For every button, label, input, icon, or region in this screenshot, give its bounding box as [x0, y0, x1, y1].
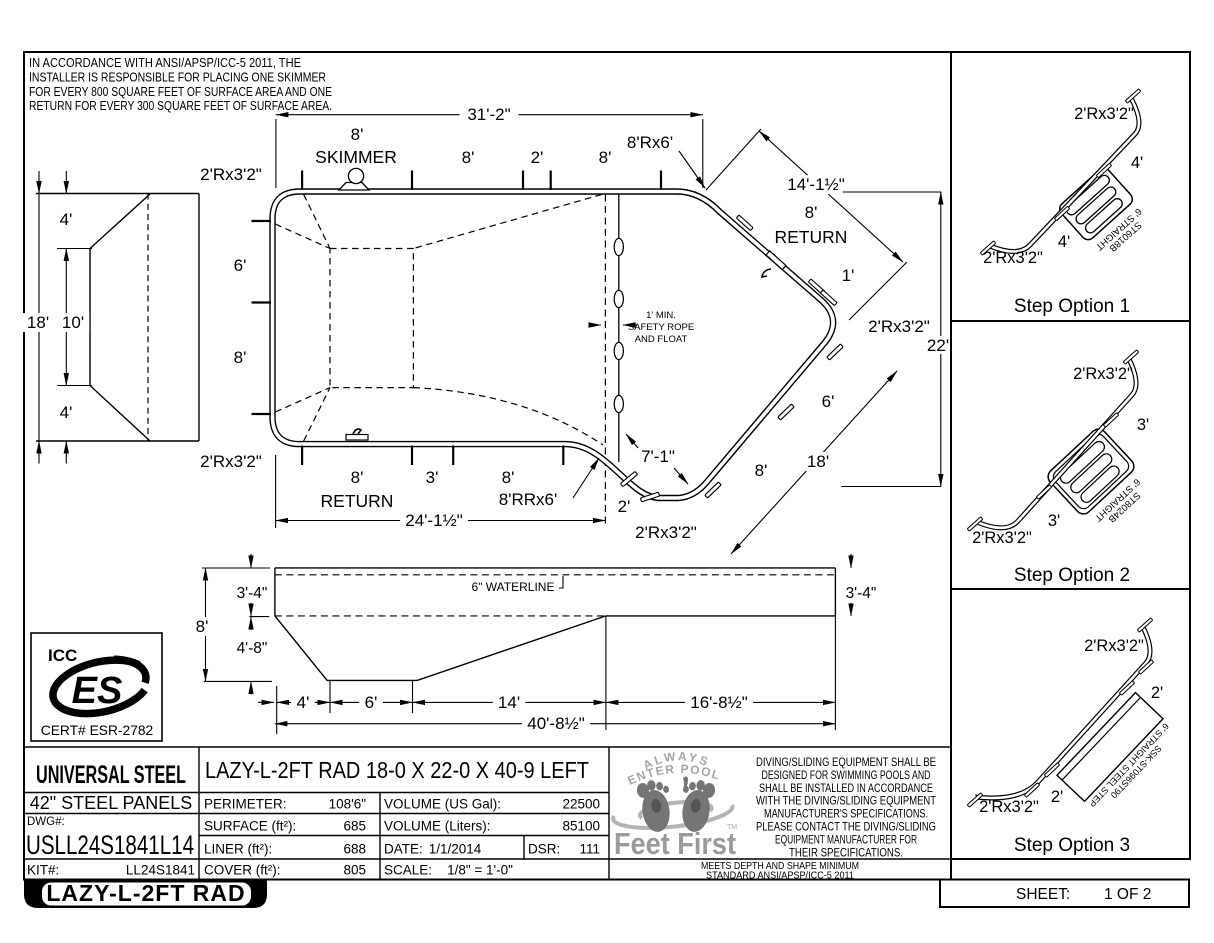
- svg-text:8': 8': [196, 617, 209, 636]
- svg-text:6': 6': [234, 256, 247, 275]
- svg-text:DATE:: DATE:: [384, 842, 423, 857]
- svg-text:SURFACE (ft²):: SURFACE (ft²):: [204, 819, 296, 834]
- svg-text:ICC: ICC: [48, 646, 77, 665]
- svg-text:18': 18': [27, 313, 49, 332]
- svg-text:KIT#:: KIT#:: [27, 863, 59, 878]
- svg-text:SHEET:: SHEET:: [1016, 886, 1070, 903]
- svg-text:2'Rx3'2": 2'Rx3'2": [979, 798, 1039, 816]
- svg-text:8': 8': [462, 148, 475, 167]
- svg-text:2'Rx3'2": 2'Rx3'2": [1074, 105, 1134, 123]
- svg-text:14': 14': [498, 693, 520, 712]
- svg-text:SHALL BE INSTALLED IN ACCORDAN: SHALL BE INSTALLED IN ACCORDANCE: [759, 781, 933, 795]
- svg-text:1': 1': [842, 266, 855, 285]
- svg-text:31'-2": 31'-2": [467, 105, 510, 124]
- svg-text:6" WATERLINE: 6" WATERLINE: [472, 580, 555, 594]
- svg-text:1' MIN.: 1' MIN.: [646, 310, 676, 321]
- svg-text:EQUIPMENT MANUFACTURER FOR: EQUIPMENT MANUFACTURER FOR: [775, 832, 917, 846]
- svg-text:2': 2': [1151, 684, 1163, 702]
- svg-text:PERIMETER:: PERIMETER:: [204, 797, 287, 812]
- svg-text:VOLUME (Liters):: VOLUME (Liters):: [384, 819, 491, 834]
- svg-text:8': 8': [351, 468, 364, 487]
- svg-text:Feet First: Feet First: [614, 826, 736, 861]
- svg-text:STANDARD ANSI/APSP/ICC-5 2011: STANDARD ANSI/APSP/ICC-5 2011: [706, 871, 854, 882]
- svg-text:40'-8½": 40'-8½": [527, 714, 584, 733]
- svg-text:DWG#:: DWG#:: [27, 816, 65, 828]
- svg-text:688: 688: [343, 842, 366, 857]
- svg-text:108'6": 108'6": [329, 797, 367, 812]
- svg-text:6': 6': [365, 693, 378, 712]
- svg-text:14'-1½": 14'-1½": [787, 175, 844, 194]
- svg-text:8': 8': [755, 461, 768, 480]
- svg-text:ES: ES: [72, 670, 123, 712]
- svg-text:LL24S1841: LL24S1841: [126, 863, 195, 878]
- svg-text:2'Rx3'2": 2'Rx3'2": [1084, 637, 1144, 655]
- svg-text:2': 2': [531, 148, 544, 167]
- svg-text:IN ACCORDANCE WITH ANSI/APSP/I: IN ACCORDANCE WITH ANSI/APSP/ICC-5 2011,…: [29, 55, 301, 70]
- svg-text:22500: 22500: [562, 797, 600, 812]
- svg-text:85100: 85100: [562, 819, 600, 834]
- svg-text:8': 8': [805, 203, 818, 222]
- svg-text:3'-4": 3'-4": [237, 585, 268, 602]
- svg-text:805: 805: [343, 863, 366, 878]
- svg-text:Step Option 1: Step Option 1: [1014, 296, 1130, 317]
- svg-text:Step Option 3: Step Option 3: [1014, 835, 1130, 856]
- svg-text:1/8" = 1'-0": 1/8" = 1'-0": [447, 863, 513, 878]
- svg-text:18': 18': [807, 452, 829, 471]
- svg-text:10': 10': [62, 313, 84, 332]
- svg-text:16'-8½": 16'-8½": [690, 693, 747, 712]
- svg-text:8': 8': [234, 348, 247, 367]
- svg-text:RETURN: RETURN: [775, 227, 848, 247]
- svg-text:111: 111: [579, 842, 600, 857]
- svg-text:1 OF 2: 1 OF 2: [1104, 886, 1151, 903]
- svg-text:4': 4': [1058, 233, 1070, 251]
- svg-text:24'-1½": 24'-1½": [405, 511, 462, 530]
- svg-text:2'Rx3'2": 2'Rx3'2": [200, 452, 262, 471]
- svg-text:3': 3': [1048, 512, 1060, 530]
- svg-text:COVER (ft²):: COVER (ft²):: [204, 863, 281, 878]
- svg-text:DESIGNED FOR SWIMMING POOLS AN: DESIGNED FOR SWIMMING POOLS AND: [762, 768, 931, 782]
- svg-text:CERT# ESR-2782: CERT# ESR-2782: [41, 723, 153, 738]
- svg-text:2': 2': [618, 497, 631, 516]
- svg-text:8': 8': [502, 468, 515, 487]
- svg-text:SCALE:: SCALE:: [384, 863, 432, 878]
- svg-text:2': 2': [1051, 788, 1063, 806]
- svg-text:8': 8': [599, 148, 612, 167]
- svg-text:3'-4": 3'-4": [846, 585, 877, 602]
- svg-text:SAFETY ROPE: SAFETY ROPE: [628, 322, 694, 333]
- svg-text:SKIMMER: SKIMMER: [315, 147, 397, 167]
- svg-text:8': 8': [351, 125, 364, 144]
- svg-text:UNIVERSAL STEEL: UNIVERSAL STEEL: [36, 761, 186, 789]
- svg-text:4': 4': [60, 403, 73, 422]
- svg-text:LAZY-L-2FT RAD: LAZY-L-2FT RAD: [46, 880, 245, 906]
- svg-text:2'Rx3'2": 2'Rx3'2": [972, 529, 1032, 547]
- svg-text:3': 3': [426, 468, 439, 487]
- svg-text:2'Rx3'2": 2'Rx3'2": [983, 249, 1043, 267]
- svg-text:VOLUME (US Gal):: VOLUME (US Gal):: [384, 797, 501, 812]
- svg-text:6': 6': [822, 392, 835, 411]
- svg-text:2'Rx3'2": 2'Rx3'2": [868, 317, 930, 336]
- svg-text:LINER (ft²):: LINER (ft²):: [204, 842, 272, 857]
- svg-text:1/1/2014: 1/1/2014: [429, 842, 482, 857]
- svg-text:THEIR SPECIFICATIONS.: THEIR SPECIFICATIONS.: [789, 845, 903, 859]
- svg-text:USLL24S1841L14: USLL24S1841L14: [26, 830, 194, 860]
- svg-text:DIVING/SLIDING EQUIPMENT SHALL: DIVING/SLIDING EQUIPMENT SHALL BE: [756, 755, 936, 769]
- svg-text:42" STEEL PANELS: 42" STEEL PANELS: [30, 793, 192, 813]
- svg-text:22': 22': [927, 336, 949, 355]
- svg-text:2'Rx3'2": 2'Rx3'2": [200, 165, 262, 184]
- svg-text:685: 685: [343, 819, 366, 834]
- svg-text:8'Rx6': 8'Rx6': [627, 133, 673, 152]
- svg-text:PLEASE CONTACT THE DIVING/SLID: PLEASE CONTACT THE DIVING/SLIDING: [756, 820, 936, 834]
- svg-text:Step Option 2: Step Option 2: [1014, 565, 1130, 586]
- svg-text:RETURN: RETURN: [321, 491, 394, 511]
- svg-text:RETURN FOR EVERY 300 SQUARE FE: RETURN FOR EVERY 300 SQUARE FEET OF SURF…: [29, 98, 332, 113]
- svg-text:INSTALLER IS RESPONSIBLE FOR P: INSTALLER IS RESPONSIBLE FOR PLACING ONE…: [29, 69, 326, 84]
- svg-text:2'Rx3'2": 2'Rx3'2": [635, 523, 697, 542]
- svg-text:MANUFACTURER'S SPECIFICATIONS.: MANUFACTURER'S SPECIFICATIONS.: [764, 807, 928, 821]
- svg-text:4'-8": 4'-8": [237, 640, 268, 657]
- svg-text:4': 4': [60, 210, 73, 229]
- svg-text:7'-1": 7'-1": [641, 447, 675, 466]
- svg-text:FOR EVERY 800 SQUARE FEET OF S: FOR EVERY 800 SQUARE FEET OF SURFACE ARE…: [29, 84, 332, 99]
- svg-text:DSR:: DSR:: [528, 842, 560, 857]
- svg-text:4': 4': [297, 693, 310, 712]
- svg-text:3': 3': [1137, 416, 1149, 434]
- svg-text:4': 4': [1131, 154, 1143, 172]
- svg-text:2'Rx3'2": 2'Rx3'2": [1073, 365, 1133, 383]
- svg-text:LAZY-L-2FT RAD 18-0 X 22-0 X 4: LAZY-L-2FT RAD 18-0 X 22-0 X 40-9 LEFT: [205, 757, 589, 783]
- svg-text:AND FLOAT: AND FLOAT: [635, 334, 688, 345]
- svg-text:WITH THE DIVING/SLIDING EQUIPM: WITH THE DIVING/SLIDING EQUIPMENT: [756, 794, 936, 808]
- svg-text:8'RRx6': 8'RRx6': [499, 490, 557, 509]
